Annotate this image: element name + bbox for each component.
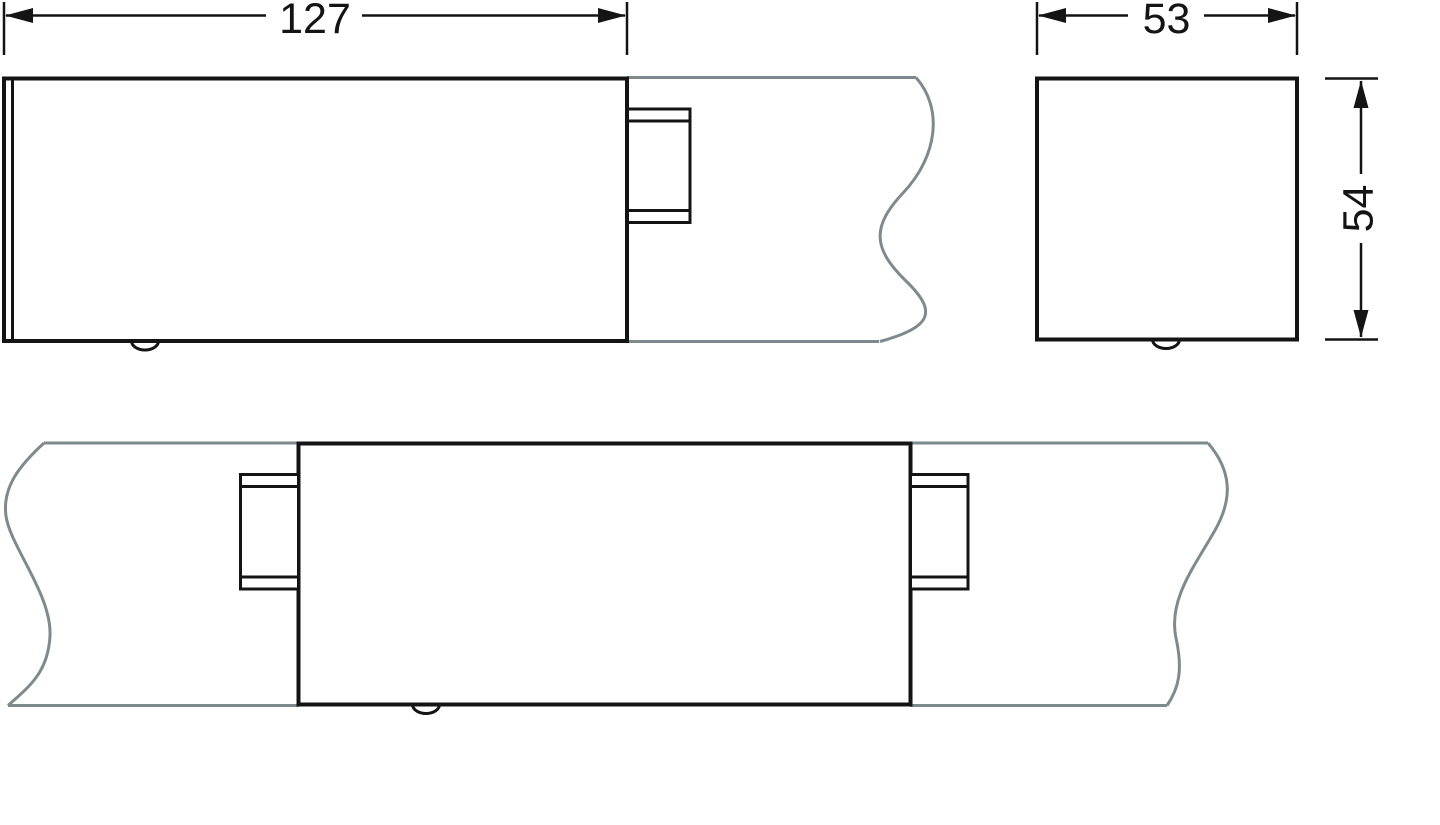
break-line-wave [1167,443,1227,706]
arrowhead-left-icon [5,8,33,23]
clip-outline [241,475,299,590]
dimension-length: 127 [4,0,627,55]
clip-outline [911,475,969,590]
end-view: 53 54 [1037,0,1383,349]
break-line-wave [880,78,933,342]
arrowhead-down-icon [1354,310,1369,338]
dimension-width: 53 [1037,0,1297,55]
arrowhead-right-icon [598,8,626,23]
clip-outline [628,109,691,223]
dimension-label-height: 54 [1335,185,1383,233]
side-view: 127 [4,0,933,350]
coupler-body-outline [4,79,627,342]
dimension-label-length: 127 [279,0,351,43]
arrowhead-up-icon [1354,81,1369,109]
mounting-clip-side-view [628,109,691,223]
mounting-clip-right [911,475,969,590]
dimension-label-width: 53 [1143,0,1191,43]
arrowhead-right-icon [1268,8,1296,23]
dimension-drawing: 127 53 54 [0,0,1440,825]
arrowhead-left-icon [1038,8,1066,23]
mounting-clip-left [241,475,299,590]
break-line-wave [5,443,50,706]
plan-view [5,443,1227,714]
coupler-end-outline [1037,79,1297,340]
coupler-body-outline [299,444,911,705]
dimension-height: 54 [1325,79,1383,340]
technical-drawing-canvas: 127 53 54 [0,0,1440,825]
